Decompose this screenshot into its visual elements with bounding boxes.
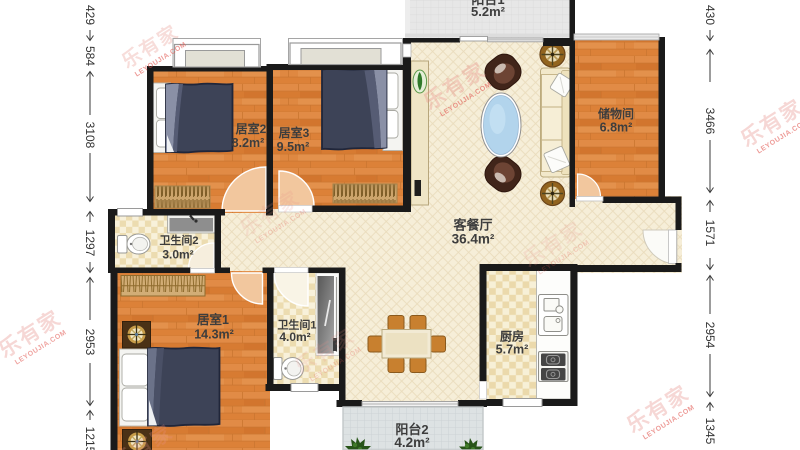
svg-text:4.0m²: 4.0m² (279, 330, 310, 344)
svg-text:储物间: 储物间 (598, 106, 634, 121)
svg-text:5.2m²: 5.2m² (471, 4, 506, 19)
svg-text:429: 429 (83, 5, 97, 25)
svg-text:8.2m²: 8.2m² (232, 136, 265, 150)
svg-text:584: 584 (83, 46, 97, 66)
svg-text:6.8m²: 6.8m² (600, 121, 633, 135)
svg-text:9.5m²: 9.5m² (277, 140, 310, 154)
svg-text:1297: 1297 (83, 230, 97, 257)
svg-text:居室3: 居室3 (279, 125, 310, 140)
svg-text:430: 430 (703, 5, 717, 25)
svg-text:5.7m²: 5.7m² (496, 343, 529, 357)
svg-text:厨房: 厨房 (500, 329, 524, 344)
svg-text:1215: 1215 (83, 427, 97, 450)
svg-text:3466: 3466 (703, 108, 717, 135)
svg-text:4.2m²: 4.2m² (394, 435, 430, 450)
svg-text:客餐厅: 客餐厅 (453, 218, 492, 233)
svg-text:2953: 2953 (83, 329, 97, 356)
svg-text:居室2: 居室2 (236, 121, 267, 136)
svg-text:2954: 2954 (703, 322, 717, 349)
svg-text:3.0m²: 3.0m² (162, 248, 193, 262)
svg-text:36.4m²: 36.4m² (452, 232, 495, 247)
svg-text:1571: 1571 (703, 220, 717, 247)
svg-text:3108: 3108 (83, 122, 97, 149)
svg-text:居室1: 居室1 (197, 312, 229, 327)
svg-text:1345: 1345 (703, 418, 717, 445)
svg-text:14.3m²: 14.3m² (194, 328, 234, 342)
svg-text:卫生间2: 卫生间2 (159, 233, 198, 247)
